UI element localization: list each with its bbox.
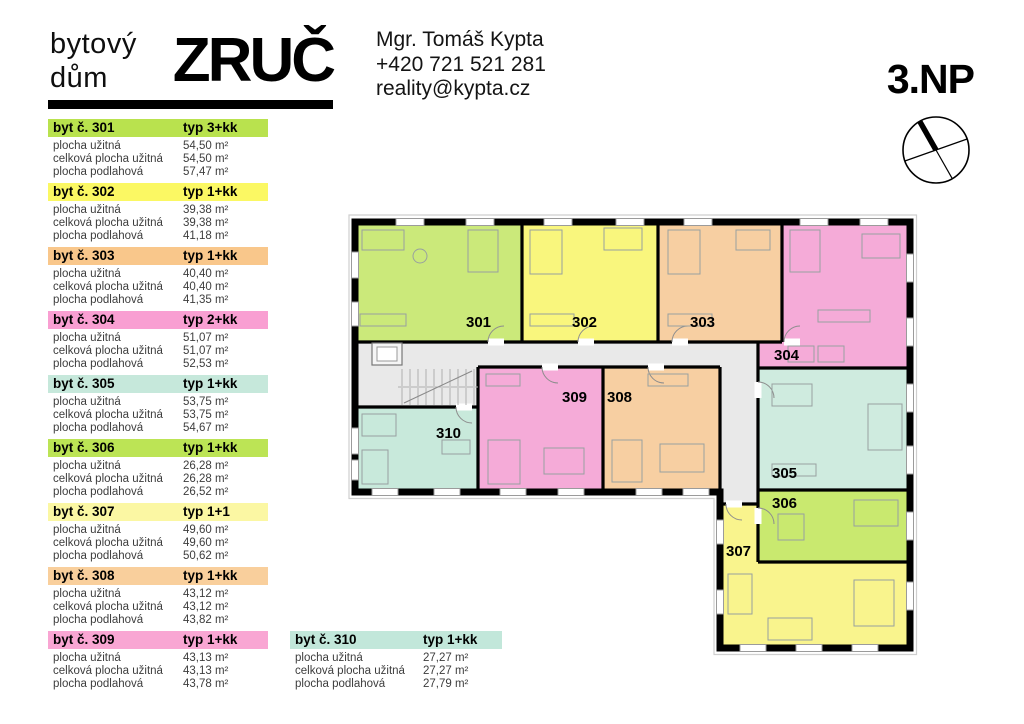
- area-row: plocha užitná54,50 m²: [48, 140, 268, 153]
- apartment-card-309: byt č. 309 typ 1+kk plocha užitná43,13 m…: [48, 631, 268, 691]
- room-label-309: 309: [562, 389, 587, 406]
- area-label: plocha podlahová: [295, 678, 385, 690]
- room-label-307: 307: [726, 543, 751, 560]
- area-label: celková plocha užitná: [53, 473, 163, 485]
- area-label: plocha užitná: [53, 396, 121, 408]
- area-row: plocha užitná49,60 m²: [48, 524, 268, 537]
- apartment-number: byt č. 304: [53, 312, 115, 327]
- apartment-number: byt č. 308: [53, 568, 115, 583]
- area-value: 49,60 m²: [183, 524, 228, 536]
- plan-room-301: [355, 222, 522, 342]
- area-value: 26,28 m²: [183, 460, 228, 472]
- area-row: plocha podlahová41,35 m²: [48, 294, 268, 307]
- floor-plan: 301 302 303 304 305 306 307 308 309 310: [348, 214, 920, 658]
- apartment-card-302: byt č. 302 typ 1+kk plocha užitná39,38 m…: [48, 183, 268, 243]
- area-row: celková plocha užitná26,28 m²: [48, 473, 268, 486]
- apartment-card-header: byt č. 307 typ 1+1: [48, 503, 268, 521]
- area-row: plocha užitná40,40 m²: [48, 268, 268, 281]
- apartment-card-304: byt č. 304 typ 2+kk plocha užitná51,07 m…: [48, 311, 268, 371]
- apartment-number: byt č. 309: [53, 632, 115, 647]
- apartment-number: byt č. 303: [53, 248, 115, 263]
- apartment-card-305: byt č. 305 typ 1+kk plocha užitná53,75 m…: [48, 375, 268, 435]
- area-row: plocha podlahová54,67 m²: [48, 422, 268, 435]
- area-label: celková plocha užitná: [53, 601, 163, 613]
- area-label: celková plocha užitná: [53, 153, 163, 165]
- apartment-number: byt č. 307: [53, 504, 115, 519]
- apartment-type: typ 1+kk: [183, 184, 237, 199]
- area-value: 57,47 m²: [183, 166, 228, 178]
- area-row: plocha podlahová41,18 m²: [48, 230, 268, 243]
- area-row: plocha podlahová50,62 m²: [48, 550, 268, 563]
- area-value: 54,67 m²: [183, 422, 228, 434]
- apartment-card-306: byt č. 306 typ 1+kk plocha užitná26,28 m…: [48, 439, 268, 499]
- apartment-number: byt č. 305: [53, 376, 115, 391]
- area-row: plocha podlahová43,82 m²: [48, 614, 268, 627]
- area-label: celková plocha užitná: [295, 665, 405, 677]
- area-value: 26,28 m²: [183, 473, 228, 485]
- area-value: 39,38 m²: [183, 204, 228, 216]
- area-label: plocha podlahová: [53, 230, 143, 242]
- area-row: plocha užitná51,07 m²: [48, 332, 268, 345]
- room-label-310: 310: [436, 425, 461, 442]
- room-label-304: 304: [774, 347, 800, 364]
- area-value: 43,13 m²: [183, 665, 228, 677]
- area-label: celková plocha užitná: [53, 665, 163, 677]
- apartment-card-header: byt č. 302 typ 1+kk: [48, 183, 268, 201]
- contact-block: Mgr. Tomáš Kypta +420 721 521 281 realit…: [376, 28, 546, 102]
- apartment-type: typ 1+kk: [183, 440, 237, 455]
- area-label: plocha užitná: [53, 652, 121, 664]
- brand-underline: [48, 100, 333, 109]
- area-row: celková plocha užitná53,75 m²: [48, 409, 268, 422]
- area-value: 41,35 m²: [183, 294, 228, 306]
- area-value: 43,78 m²: [183, 678, 228, 690]
- area-row: celková plocha užitná51,07 m²: [48, 345, 268, 358]
- area-value: 43,13 m²: [183, 652, 228, 664]
- area-row: plocha podlahová27,79 m²: [290, 678, 502, 691]
- area-value: 52,53 m²: [183, 358, 228, 370]
- brand-word-line2: dům: [50, 62, 108, 95]
- apartment-number: byt č. 301: [53, 120, 115, 135]
- room-label-308: 308: [607, 389, 632, 406]
- area-label: plocha podlahová: [53, 486, 143, 498]
- area-row: plocha podlahová57,47 m²: [48, 166, 268, 179]
- north-compass-icon: [898, 110, 976, 192]
- area-row: plocha užitná43,12 m²: [48, 588, 268, 601]
- area-value: 40,40 m²: [183, 268, 228, 280]
- brand-word-line1: bytový: [50, 28, 137, 61]
- area-label: plocha podlahová: [53, 614, 143, 626]
- area-label: plocha podlahová: [53, 166, 143, 178]
- building-name: ZRUČ: [160, 26, 333, 96]
- area-value: 50,62 m²: [183, 550, 228, 562]
- area-label: celková plocha užitná: [53, 345, 163, 357]
- area-row: celková plocha užitná40,40 m²: [48, 281, 268, 294]
- apartment-type: typ 1+kk: [183, 568, 237, 583]
- area-label: celková plocha užitná: [53, 409, 163, 421]
- area-row: plocha užitná43,13 m²: [48, 652, 268, 665]
- area-value: 26,52 m²: [183, 486, 228, 498]
- apartment-number: byt č. 306: [53, 440, 115, 455]
- area-value: 51,07 m²: [183, 332, 228, 344]
- area-row: plocha užitná53,75 m²: [48, 396, 268, 409]
- area-label: plocha podlahová: [53, 358, 143, 370]
- apartment-card-header: byt č. 303 typ 1+kk: [48, 247, 268, 265]
- area-label: plocha užitná: [53, 460, 121, 472]
- apartment-card-header: byt č. 309 typ 1+kk: [48, 631, 268, 649]
- area-value: 41,18 m²: [183, 230, 228, 242]
- apartment-card-header: byt č. 308 typ 1+kk: [48, 567, 268, 585]
- apartment-card-301: byt č. 301 typ 3+kk plocha užitná54,50 m…: [48, 119, 268, 179]
- area-value: 43,12 m²: [183, 601, 228, 613]
- area-value: 40,40 m²: [183, 281, 228, 293]
- area-value: 54,50 m²: [183, 153, 228, 165]
- area-row: plocha užitná26,28 m²: [48, 460, 268, 473]
- area-row: plocha užitná39,38 m²: [48, 204, 268, 217]
- contact-email: reality@kypta.cz: [376, 77, 546, 102]
- area-label: plocha podlahová: [53, 678, 143, 690]
- area-value: 39,38 m²: [183, 217, 228, 229]
- area-label: celková plocha užitná: [53, 281, 163, 293]
- area-value: 54,50 m²: [183, 140, 228, 152]
- area-value: 27,27 m²: [423, 665, 468, 677]
- area-label: plocha podlahová: [53, 294, 143, 306]
- area-value: 27,79 m²: [423, 678, 468, 690]
- contact-phone: +420 721 521 281: [376, 53, 546, 78]
- apartment-type: typ 2+kk: [183, 312, 237, 327]
- area-value: 43,82 m²: [183, 614, 228, 626]
- apartment-card-header: byt č. 305 typ 1+kk: [48, 375, 268, 393]
- area-label: plocha užitná: [53, 268, 121, 280]
- room-label-303: 303: [690, 314, 715, 331]
- area-value: 51,07 m²: [183, 345, 228, 357]
- area-label: plocha užitná: [53, 332, 121, 344]
- area-value: 53,75 m²: [183, 396, 228, 408]
- area-value: 49,60 m²: [183, 537, 228, 549]
- contact-name: Mgr. Tomáš Kypta: [376, 28, 546, 53]
- area-value: 43,12 m²: [183, 588, 228, 600]
- apartment-type: typ 1+kk: [183, 248, 237, 263]
- room-label-301: 301: [466, 314, 491, 331]
- area-row: celková plocha užitná27,27 m²: [290, 665, 502, 678]
- floor-title: 3.NP: [856, 56, 974, 103]
- area-label: plocha užitná: [53, 588, 121, 600]
- area-label: plocha užitná: [53, 140, 121, 152]
- apartment-type: typ 3+kk: [183, 120, 237, 135]
- apartment-type: typ 1+kk: [183, 376, 237, 391]
- area-row: celková plocha užitná54,50 m²: [48, 153, 268, 166]
- apartment-type: typ 1+kk: [183, 632, 237, 647]
- apartment-card-header: byt č. 306 typ 1+kk: [48, 439, 268, 457]
- area-label: plocha užitná: [53, 204, 121, 216]
- area-label: plocha užitná: [53, 524, 121, 536]
- area-row: plocha podlahová26,52 m²: [48, 486, 268, 499]
- apartment-type: typ 1+1: [183, 504, 230, 519]
- apartment-card-303: byt č. 303 typ 1+kk plocha užitná40,40 m…: [48, 247, 268, 307]
- area-label: plocha podlahová: [53, 550, 143, 562]
- area-value: 53,75 m²: [183, 409, 228, 421]
- area-label: celková plocha užitná: [53, 217, 163, 229]
- plan-room-303: [658, 222, 782, 342]
- area-row: celková plocha užitná43,13 m²: [48, 665, 268, 678]
- area-label: celková plocha užitná: [53, 537, 163, 549]
- area-label: plocha podlahová: [53, 422, 143, 434]
- floorplan-brochure-page: { "brand": { "line1": "bytový", "line2":…: [0, 0, 1024, 724]
- room-label-302: 302: [572, 314, 597, 331]
- apartment-card-header: byt č. 301 typ 3+kk: [48, 119, 268, 137]
- apartment-card-308: byt č. 308 typ 1+kk plocha užitná43,12 m…: [48, 567, 268, 627]
- apartment-card-307: byt č. 307 typ 1+1 plocha užitná49,60 m²…: [48, 503, 268, 563]
- area-row: celková plocha užitná39,38 m²: [48, 217, 268, 230]
- room-label-306: 306: [772, 495, 797, 512]
- area-row: celková plocha užitná43,12 m²: [48, 601, 268, 614]
- area-row: plocha podlahová43,78 m²: [48, 678, 268, 691]
- room-label-305: 305: [772, 465, 797, 482]
- apartment-card-header: byt č. 304 typ 2+kk: [48, 311, 268, 329]
- area-row: plocha podlahová52,53 m²: [48, 358, 268, 371]
- apartment-number: byt č. 302: [53, 184, 115, 199]
- area-row: celková plocha užitná49,60 m²: [48, 537, 268, 550]
